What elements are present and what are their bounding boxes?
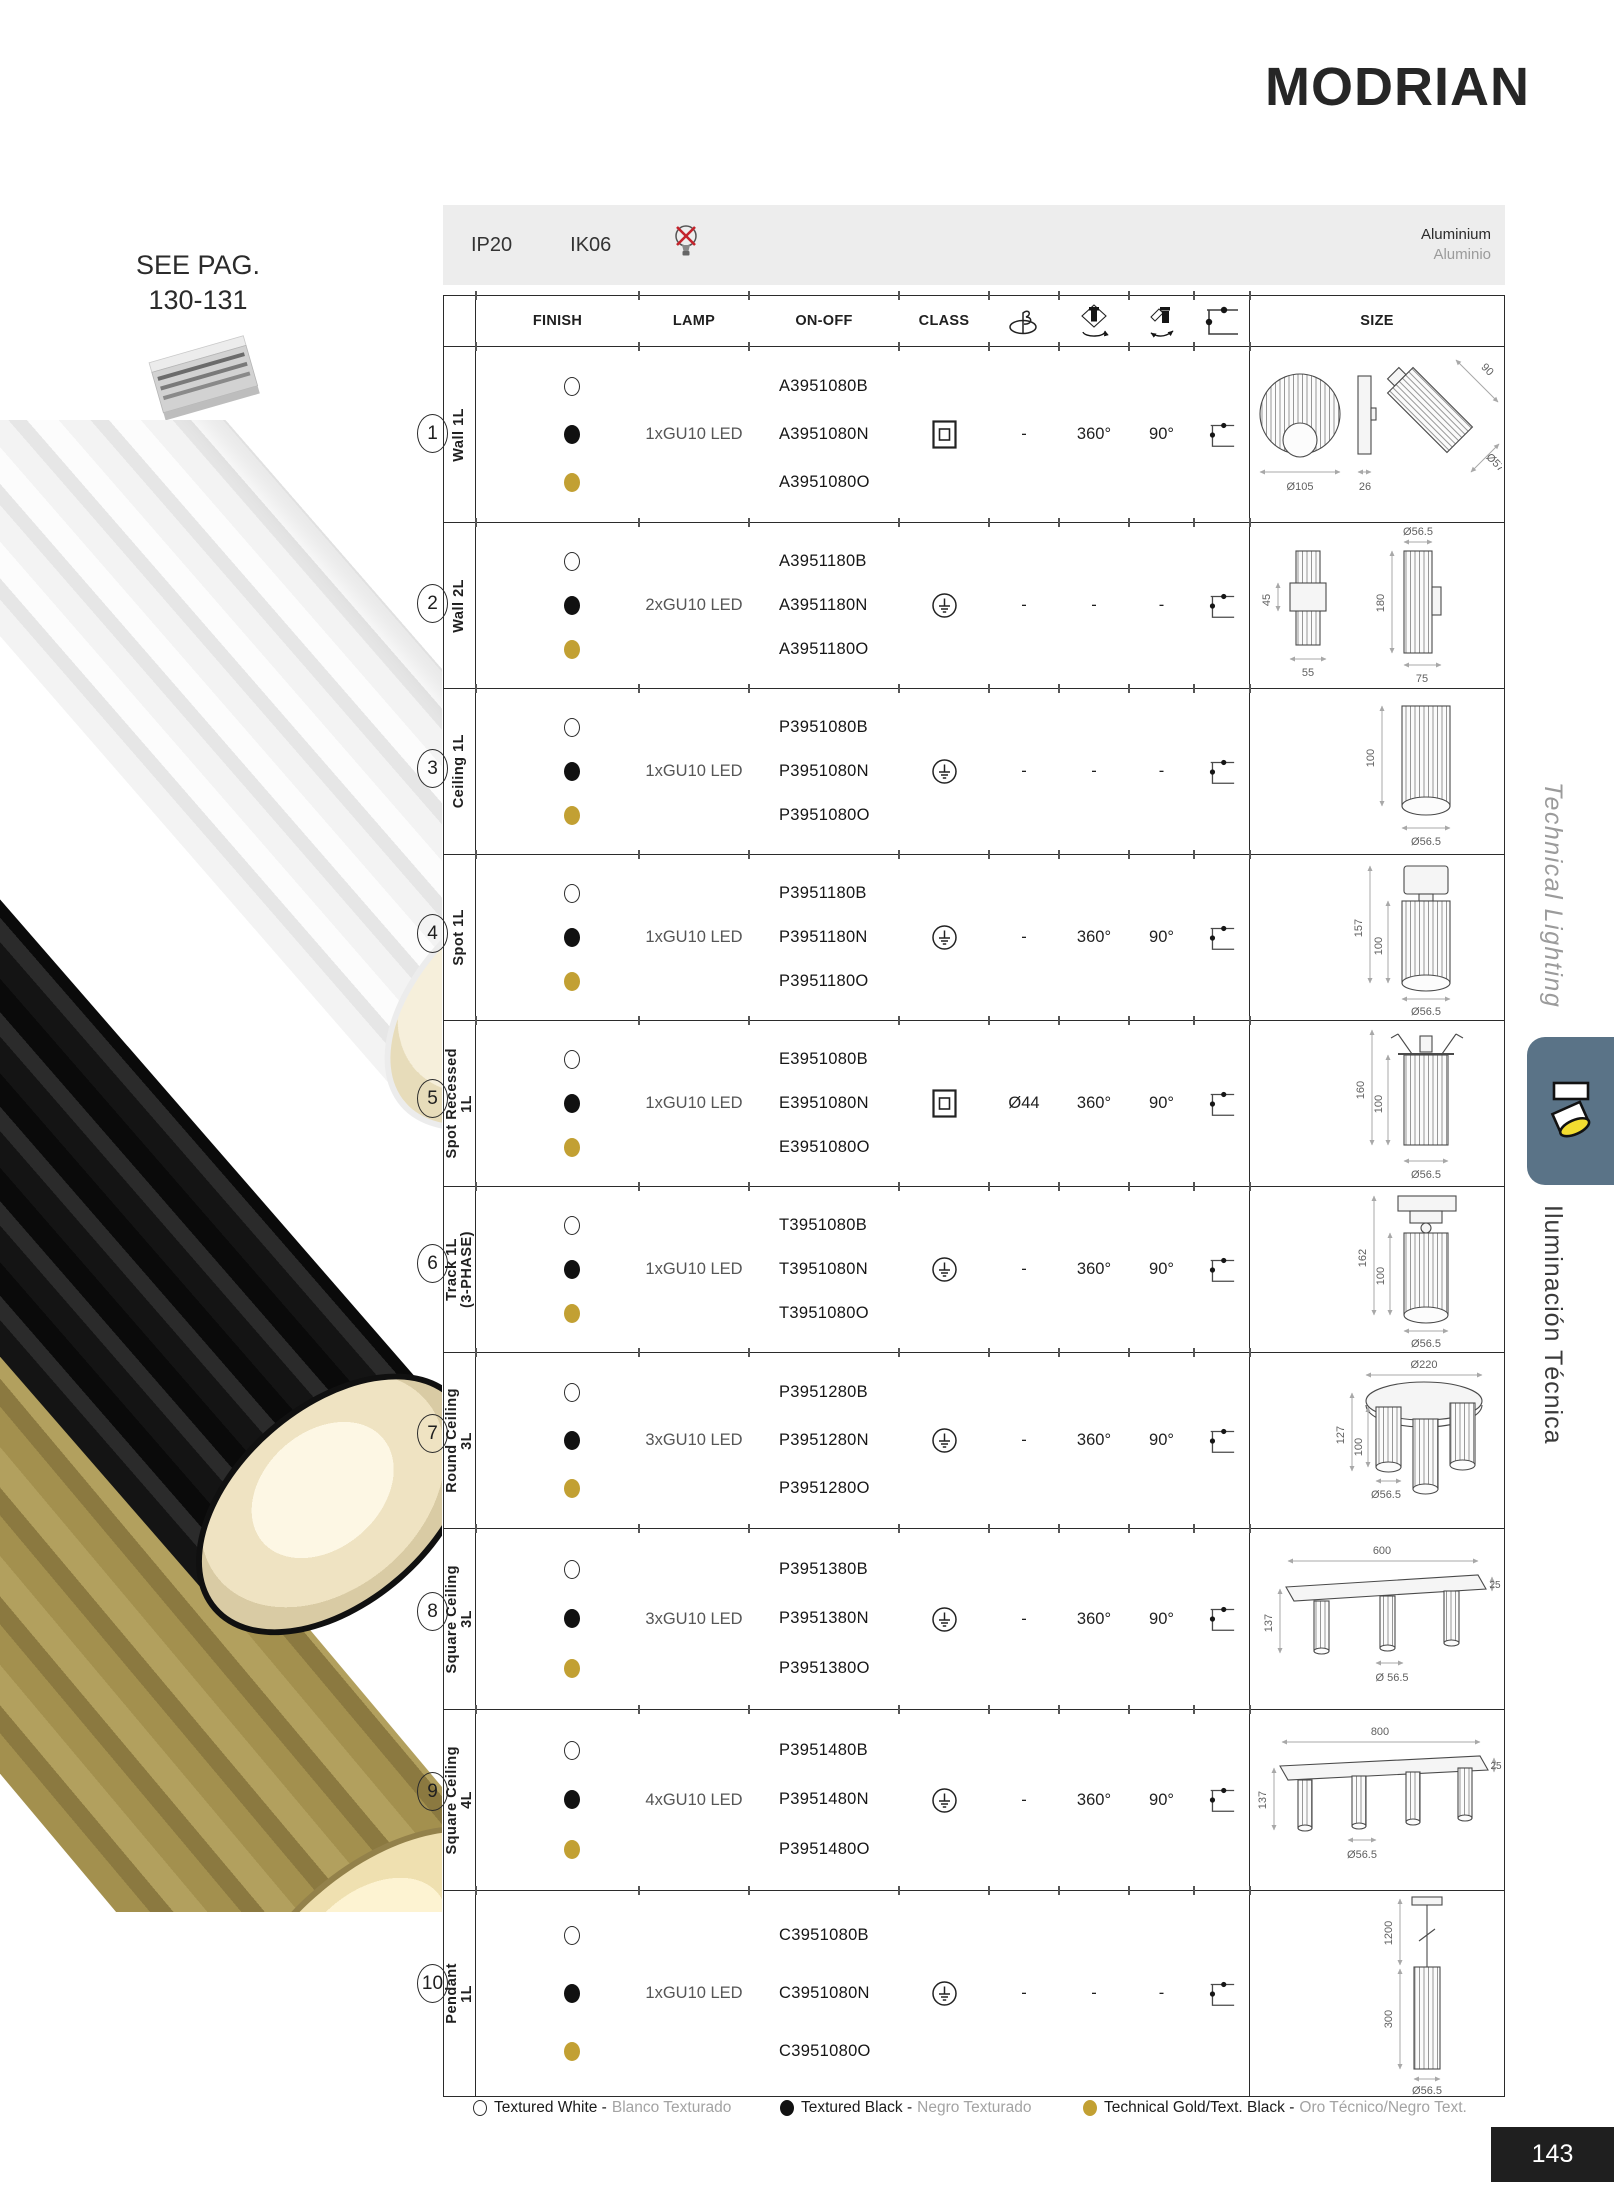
table-row-spot-recessed-1l: Spot Recessed1L 1xGU10 LED E3951080B E39… bbox=[444, 1020, 1504, 1186]
class-i-icon bbox=[899, 689, 989, 854]
product-code: P3951280O bbox=[779, 1479, 870, 1498]
dim-label: Ø56.5 bbox=[1347, 1849, 1377, 1861]
product-code: P3951180B bbox=[779, 884, 867, 903]
dim-label: 180 bbox=[1375, 593, 1387, 611]
row-label-2: 4L bbox=[460, 1791, 475, 1809]
lamp-spec: 1xGU10 LED bbox=[639, 855, 749, 1020]
size-diagram: 600 25 137 Ø 56.5 bbox=[1249, 1529, 1504, 1709]
legend-textured-white: Textured White - Blanco Texturado bbox=[473, 2099, 731, 2117]
finish-dot-white bbox=[564, 1741, 580, 1760]
legend-textured-black: Textured Black - Negro Texturado bbox=[780, 2099, 1031, 2117]
row-number-7: 7 bbox=[417, 1414, 448, 1453]
finish-dot-gold bbox=[564, 806, 580, 825]
finish-dot-gold bbox=[564, 1138, 580, 1157]
mounting-icon bbox=[1194, 1353, 1249, 1528]
product-table: FINISH LAMP ON-OFF CLASS SIZE Wall 1L 1x… bbox=[443, 295, 1505, 2097]
mounting-icon bbox=[1194, 689, 1249, 854]
col-on-off: ON-OFF bbox=[749, 296, 899, 346]
mounting-bracket-icon bbox=[1194, 296, 1249, 346]
tilt-value: - bbox=[1129, 689, 1194, 854]
dim-label: Ø56.5 bbox=[1403, 526, 1433, 538]
product-code: A3951180B bbox=[779, 552, 867, 571]
section-label-es: Iluminación Técnica bbox=[1538, 1205, 1567, 1444]
mounting-icon bbox=[1194, 1891, 1249, 2096]
dim-label: Ø56.5 bbox=[1411, 836, 1441, 848]
tilt-value: 90° bbox=[1129, 347, 1194, 522]
mounting-icon bbox=[1194, 1187, 1249, 1352]
row-label-2: 3L bbox=[460, 1432, 475, 1450]
class-i-icon bbox=[899, 1710, 989, 1890]
product-code: P3951080N bbox=[779, 762, 869, 781]
dim-label: 25 bbox=[1490, 1761, 1502, 1772]
lamp-spec: 3xGU10 LED bbox=[639, 1353, 749, 1528]
lamp-spec: 2xGU10 LED bbox=[639, 523, 749, 688]
finish-dot-gold bbox=[564, 2042, 580, 2061]
dim-label: 137 bbox=[1263, 1614, 1275, 1632]
product-code: P3951480O bbox=[779, 1840, 870, 1859]
product-code: P3951480B bbox=[779, 1741, 868, 1760]
row-number-6: 6 bbox=[417, 1244, 448, 1283]
product-code: T3951080N bbox=[779, 1260, 868, 1279]
rotation-value: 360° bbox=[1059, 1529, 1129, 1709]
black-finish-dot bbox=[780, 2100, 794, 2116]
rotation-value: - bbox=[1059, 523, 1129, 688]
cutout-value: - bbox=[989, 1891, 1059, 2096]
rotation-value: 360° bbox=[1059, 347, 1129, 522]
row-label: Wall 1L bbox=[452, 408, 467, 462]
row-number-2: 2 bbox=[417, 584, 448, 623]
tilt-value: - bbox=[1129, 523, 1194, 688]
finish-dot-gold bbox=[564, 473, 580, 492]
lamp-spec: 1xGU10 LED bbox=[639, 1187, 749, 1352]
legend-technical-gold: Technical Gold/Text. Black - Oro Técnico… bbox=[1083, 2099, 1467, 2117]
dim-label: 55 bbox=[1302, 667, 1314, 679]
finish-dot-white bbox=[564, 1560, 580, 1579]
cutout-value: - bbox=[989, 855, 1059, 1020]
spec-info-bar: IP20 IK06 Aluminium Aluminio bbox=[443, 205, 1505, 285]
row-number-10: 10 bbox=[417, 1964, 448, 2003]
gold-finish-dot bbox=[1083, 2100, 1097, 2116]
row-label: Wall 2L bbox=[452, 579, 467, 633]
table-row-square-ceiling-3l: Square Ceiling3L 3xGU10 LED P3951380B P3… bbox=[444, 1528, 1504, 1709]
tilt-value: 90° bbox=[1129, 1529, 1194, 1709]
bulb-not-included-icon bbox=[669, 222, 703, 269]
class-i-icon bbox=[899, 855, 989, 1020]
finish-dot-white bbox=[564, 552, 580, 571]
dim-label: 160 bbox=[1355, 1080, 1367, 1098]
dim-label: Ø 56.5 bbox=[1375, 1672, 1408, 1684]
row-number-1: 1 bbox=[417, 414, 448, 453]
catalog-page: MODRIAN SEE PAG. 130-131 LED BULBS Pag. … bbox=[0, 0, 1614, 2204]
tilt-value: 90° bbox=[1129, 1187, 1194, 1352]
rotation-value: 360° bbox=[1059, 1021, 1129, 1186]
lamp-spec: 4xGU10 LED bbox=[639, 1710, 749, 1890]
dim-label: 25 bbox=[1489, 1580, 1501, 1591]
finish-dot-white bbox=[564, 1050, 580, 1069]
dim-label: Ø56.5 bbox=[1371, 1489, 1401, 1501]
row-label: Square Ceiling bbox=[445, 1746, 460, 1855]
col-size: SIZE bbox=[1249, 296, 1504, 346]
dim-label: Ø56.5 bbox=[1412, 2085, 1442, 2096]
mounting-icon bbox=[1194, 1710, 1249, 1890]
product-code: A3951080N bbox=[779, 425, 869, 444]
lamp-spec: 3xGU10 LED bbox=[639, 1529, 749, 1709]
dim-label: Ø57 bbox=[1484, 451, 1502, 474]
dim-label: 100 bbox=[1365, 748, 1377, 766]
finish-dot-gold bbox=[564, 640, 580, 659]
rotation-value: 360° bbox=[1059, 1710, 1129, 1890]
rotation-value: 360° bbox=[1059, 1353, 1129, 1528]
tilt-90-icon bbox=[1129, 296, 1194, 346]
table-row-ceiling-1l: Ceiling 1L 1xGU10 LED P3951080B P3951080… bbox=[444, 688, 1504, 854]
product-code: A3951080O bbox=[779, 473, 870, 492]
finish-dot-black bbox=[564, 1609, 580, 1628]
finish-dot-black bbox=[564, 596, 580, 615]
lamp-spec: 1xGU10 LED bbox=[639, 1891, 749, 2096]
section-label-en: Technical Lighting bbox=[1538, 782, 1567, 1008]
dim-label: Ø56.5 bbox=[1411, 1338, 1441, 1350]
size-diagram: 162 100 Ø56.5 bbox=[1249, 1187, 1504, 1352]
finish-dot-black bbox=[564, 1094, 580, 1113]
ik-rating: IK06 bbox=[570, 234, 611, 257]
cutout-value: - bbox=[989, 1353, 1059, 1528]
table-row-square-ceiling-4l: Square Ceiling4L 4xGU10 LED P3951480B P3… bbox=[444, 1709, 1504, 1890]
row-label-2: 3L bbox=[460, 1610, 475, 1628]
row-number-3: 3 bbox=[417, 749, 448, 788]
rotation-value: - bbox=[1059, 1891, 1129, 2096]
cutout-value: Ø44 bbox=[989, 1021, 1059, 1186]
product-code: P3951180N bbox=[779, 928, 868, 947]
size-diagram: 100 Ø56.5 bbox=[1249, 689, 1504, 854]
page-title: MODRIAN bbox=[1265, 56, 1530, 118]
finish-dot-gold bbox=[564, 1479, 580, 1498]
rotation-360-icon bbox=[1059, 296, 1129, 346]
product-code: T3951080O bbox=[779, 1304, 869, 1323]
dim-label: 127 bbox=[1335, 1425, 1347, 1443]
finish-dot-gold bbox=[564, 1659, 580, 1678]
finish-dot-white bbox=[564, 377, 580, 396]
table-row-wall-2l: Wall 2L 2xGU10 LED A3951180B A3951180N A… bbox=[444, 522, 1504, 688]
product-photo bbox=[0, 420, 442, 1912]
row-number-8: 8 bbox=[417, 1592, 448, 1631]
row-label-2: 1L bbox=[460, 1095, 475, 1113]
rotation-value: 360° bbox=[1059, 855, 1129, 1020]
col-finish: FINISH bbox=[476, 296, 639, 346]
dim-label: 1200 bbox=[1383, 1921, 1395, 1945]
tilt-value: 90° bbox=[1129, 855, 1194, 1020]
table-row-track-1l: Track 1L(3-PHASE) 1xGU10 LED T3951080B T… bbox=[444, 1186, 1504, 1352]
row-label: Ceiling 1L bbox=[452, 734, 467, 808]
rotation-value: - bbox=[1059, 689, 1129, 854]
section-tab bbox=[1527, 1037, 1614, 1185]
dim-label: 600 bbox=[1373, 1545, 1391, 1557]
size-diagram: 1200 300 Ø56.5 bbox=[1249, 1891, 1504, 2096]
tilt-value: 90° bbox=[1129, 1353, 1194, 1528]
cutout-value: - bbox=[989, 523, 1059, 688]
product-code: T3951080B bbox=[779, 1216, 867, 1235]
dim-label: 157 bbox=[1353, 918, 1365, 936]
cutout-value: - bbox=[989, 1529, 1059, 1709]
product-code: P3951380O bbox=[779, 1659, 870, 1678]
row-label-2: 1L bbox=[460, 1985, 475, 2003]
finish-dot-white bbox=[564, 1383, 580, 1402]
row-number-4: 4 bbox=[417, 914, 448, 953]
product-code: E3951080B bbox=[779, 1050, 868, 1069]
product-code: P3951080B bbox=[779, 718, 868, 737]
row-number-5: 5 bbox=[417, 1079, 448, 1118]
finish-dot-black bbox=[564, 1431, 580, 1450]
product-code: A3951180O bbox=[779, 640, 869, 659]
dim-label: 100 bbox=[1375, 1266, 1387, 1284]
lamp-spec: 1xGU10 LED bbox=[639, 689, 749, 854]
class-i-icon bbox=[899, 1353, 989, 1528]
dim-label: 75 bbox=[1416, 673, 1428, 685]
tilt-value: 90° bbox=[1129, 1710, 1194, 1890]
product-code: P3951180O bbox=[779, 972, 869, 991]
dim-label: 45 bbox=[1261, 593, 1273, 605]
mounting-icon bbox=[1194, 523, 1249, 688]
lamp-spec: 1xGU10 LED bbox=[639, 1021, 749, 1186]
mounting-icon bbox=[1194, 1021, 1249, 1186]
cutout-value: - bbox=[989, 1710, 1059, 1890]
product-code: E3951080O bbox=[779, 1138, 870, 1157]
class-i-icon bbox=[899, 1529, 989, 1709]
finish-dot-gold bbox=[564, 1840, 580, 1859]
dim-label: Ø105 bbox=[1287, 481, 1314, 493]
product-code: P3951380B bbox=[779, 1560, 868, 1579]
tilt-value: 90° bbox=[1129, 1021, 1194, 1186]
spotlight-icon bbox=[1545, 1077, 1597, 1146]
dim-label: Ø56.5 bbox=[1411, 1006, 1441, 1018]
row-label-2: (3-PHASE) bbox=[460, 1231, 475, 1308]
dim-label: 26 bbox=[1359, 481, 1371, 493]
size-diagram: 45 55 Ø56.5 180 75 bbox=[1249, 523, 1504, 688]
finish-dot-black bbox=[564, 762, 580, 781]
size-diagram: 160 100 Ø56.5 bbox=[1249, 1021, 1504, 1186]
size-diagram: Ø105 26 90 Ø57 bbox=[1249, 347, 1504, 522]
product-code: C3951080N bbox=[779, 1984, 870, 2003]
class-i-icon bbox=[899, 523, 989, 688]
tilt-value: - bbox=[1129, 1891, 1194, 2096]
finish-dot-white bbox=[564, 718, 580, 737]
table-header: FINISH LAMP ON-OFF CLASS SIZE bbox=[444, 296, 1504, 346]
cutout-value: - bbox=[989, 347, 1059, 522]
finish-dot-white bbox=[564, 1926, 580, 1945]
finish-dot-black bbox=[564, 1260, 580, 1279]
dim-label: 137 bbox=[1257, 1791, 1269, 1809]
lamp-spec: 1xGU10 LED bbox=[639, 347, 749, 522]
col-class: CLASS bbox=[899, 296, 989, 346]
dim-label: 100 bbox=[1373, 1094, 1385, 1112]
rotation-value: 360° bbox=[1059, 1187, 1129, 1352]
class-i-icon bbox=[899, 1891, 989, 2096]
dim-label: 100 bbox=[1353, 1437, 1365, 1455]
row-label: Spot 1L bbox=[452, 909, 467, 966]
row-label: Pendant bbox=[445, 1963, 460, 2024]
class-i-icon bbox=[899, 1187, 989, 1352]
see-page-note: SEE PAG. 130-131 bbox=[108, 248, 288, 318]
table-row-spot-1l: Spot 1L 1xGU10 LED P3951180B P3951180N P… bbox=[444, 854, 1504, 1020]
class-ii-icon bbox=[899, 347, 989, 522]
product-code: P3951480N bbox=[779, 1790, 869, 1809]
size-diagram: Ø220 127 100 Ø56.5 bbox=[1249, 1353, 1504, 1528]
cutout-value: - bbox=[989, 689, 1059, 854]
finish-dot-white bbox=[564, 1216, 580, 1235]
product-code: P3951280B bbox=[779, 1383, 868, 1402]
finish-dot-black bbox=[564, 1984, 580, 2003]
table-row-pendant-1l: Pendant1L 1xGU10 LED C3951080B C3951080N… bbox=[444, 1890, 1504, 2096]
mounting-icon bbox=[1194, 347, 1249, 522]
dim-label: 162 bbox=[1357, 1248, 1369, 1266]
size-diagram: 157 100 Ø56.5 bbox=[1249, 855, 1504, 1020]
dim-label: Ø56.5 bbox=[1411, 1169, 1441, 1181]
product-code: P3951380N bbox=[779, 1609, 869, 1628]
finish-dot-black bbox=[564, 1790, 580, 1809]
finish-dot-gold bbox=[564, 972, 580, 991]
finish-dot-black bbox=[564, 928, 580, 947]
size-diagram: 800 25 137 Ø56.5 bbox=[1249, 1710, 1504, 1890]
class-ii-icon bbox=[899, 1021, 989, 1186]
product-code: C3951080O bbox=[779, 2042, 871, 2061]
dim-label: 100 bbox=[1373, 936, 1385, 954]
mounting-icon bbox=[1194, 1529, 1249, 1709]
table-row-wall-1l: Wall 1L 1xGU10 LED A3951080B A3951080N A… bbox=[444, 346, 1504, 522]
cutout-value: - bbox=[989, 1187, 1059, 1352]
finish-dot-gold bbox=[564, 1304, 580, 1323]
row-number-9: 9 bbox=[417, 1772, 448, 1811]
col-lamp: LAMP bbox=[639, 296, 749, 346]
material-label: Aluminium Aluminio bbox=[1421, 225, 1491, 266]
product-code: C3951080B bbox=[779, 1926, 869, 1945]
page-number: 143 bbox=[1491, 2127, 1614, 2182]
product-code: P3951080O bbox=[779, 806, 870, 825]
product-code: E3951080N bbox=[779, 1094, 869, 1113]
white-finish-dot bbox=[473, 2100, 487, 2116]
dim-label: 300 bbox=[1383, 2010, 1395, 2028]
product-code: P3951280N bbox=[779, 1431, 869, 1450]
finish-dot-black bbox=[564, 425, 580, 444]
finish-dot-white bbox=[564, 884, 580, 903]
mounting-icon bbox=[1194, 855, 1249, 1020]
dim-label: 90 bbox=[1479, 361, 1496, 378]
table-row-round-ceiling-3l: Round Ceiling3L 3xGU10 LED P3951280B P39… bbox=[444, 1352, 1504, 1528]
ip-rating: IP20 bbox=[471, 234, 512, 257]
cutout-hole-icon bbox=[989, 296, 1059, 346]
dim-label: 800 bbox=[1371, 1726, 1389, 1738]
dim-label: Ø220 bbox=[1411, 1359, 1438, 1371]
product-code: A3951180N bbox=[779, 596, 868, 615]
product-code: A3951080B bbox=[779, 377, 868, 396]
